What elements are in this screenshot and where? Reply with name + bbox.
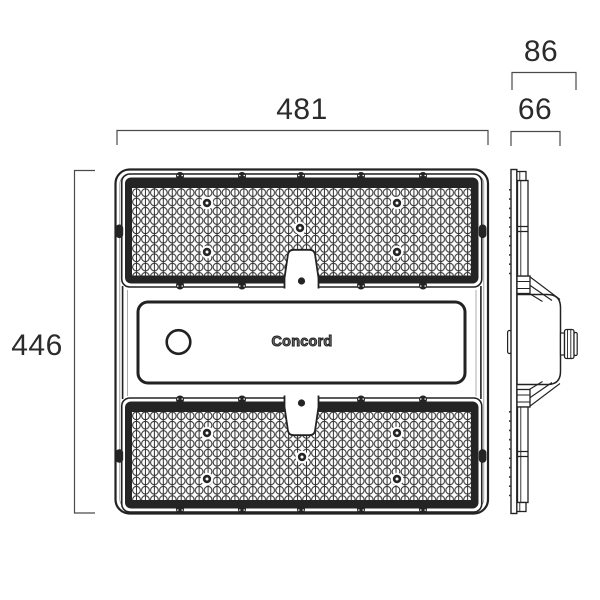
boss-bottom [517, 390, 530, 408]
side-tab-right [479, 449, 487, 463]
dim-body-depth-value: 66 [505, 93, 565, 127]
luminaire-dimension-drawing [0, 0, 600, 600]
front-plate [511, 170, 517, 514]
end-cap-top [517, 172, 527, 181]
notch-screw [298, 399, 305, 406]
led-panel-bottom [116, 396, 487, 514]
dim-front-height-value: 446 [5, 329, 69, 363]
led-panel-top [116, 172, 487, 290]
dim-front-width-value: 481 [252, 93, 352, 127]
side-tab-right [479, 225, 487, 239]
dim-front-height-bracket [75, 171, 96, 514]
technical-drawing-canvas: 481 446 86 66 Concord [0, 0, 600, 600]
fin-column-top [518, 181, 529, 277]
dim-overall-depth-value: 86 [511, 35, 571, 69]
notch-screw [298, 277, 305, 284]
dim-front-width-bracket [117, 131, 488, 146]
side-view [508, 170, 578, 514]
side-tab-left [116, 449, 124, 463]
end-cap-bottom [517, 503, 527, 512]
cable-gland [561, 330, 578, 359]
side-tab-left [116, 225, 124, 239]
dim-overall-depth-bracket [512, 73, 576, 91]
fin-column-bottom [518, 407, 529, 503]
brand-label: Concord [252, 335, 352, 350]
boss-top [517, 276, 530, 294]
driver-box [517, 295, 561, 385]
sensor-circle [167, 330, 191, 354]
dim-body-depth-bracket [511, 132, 560, 147]
